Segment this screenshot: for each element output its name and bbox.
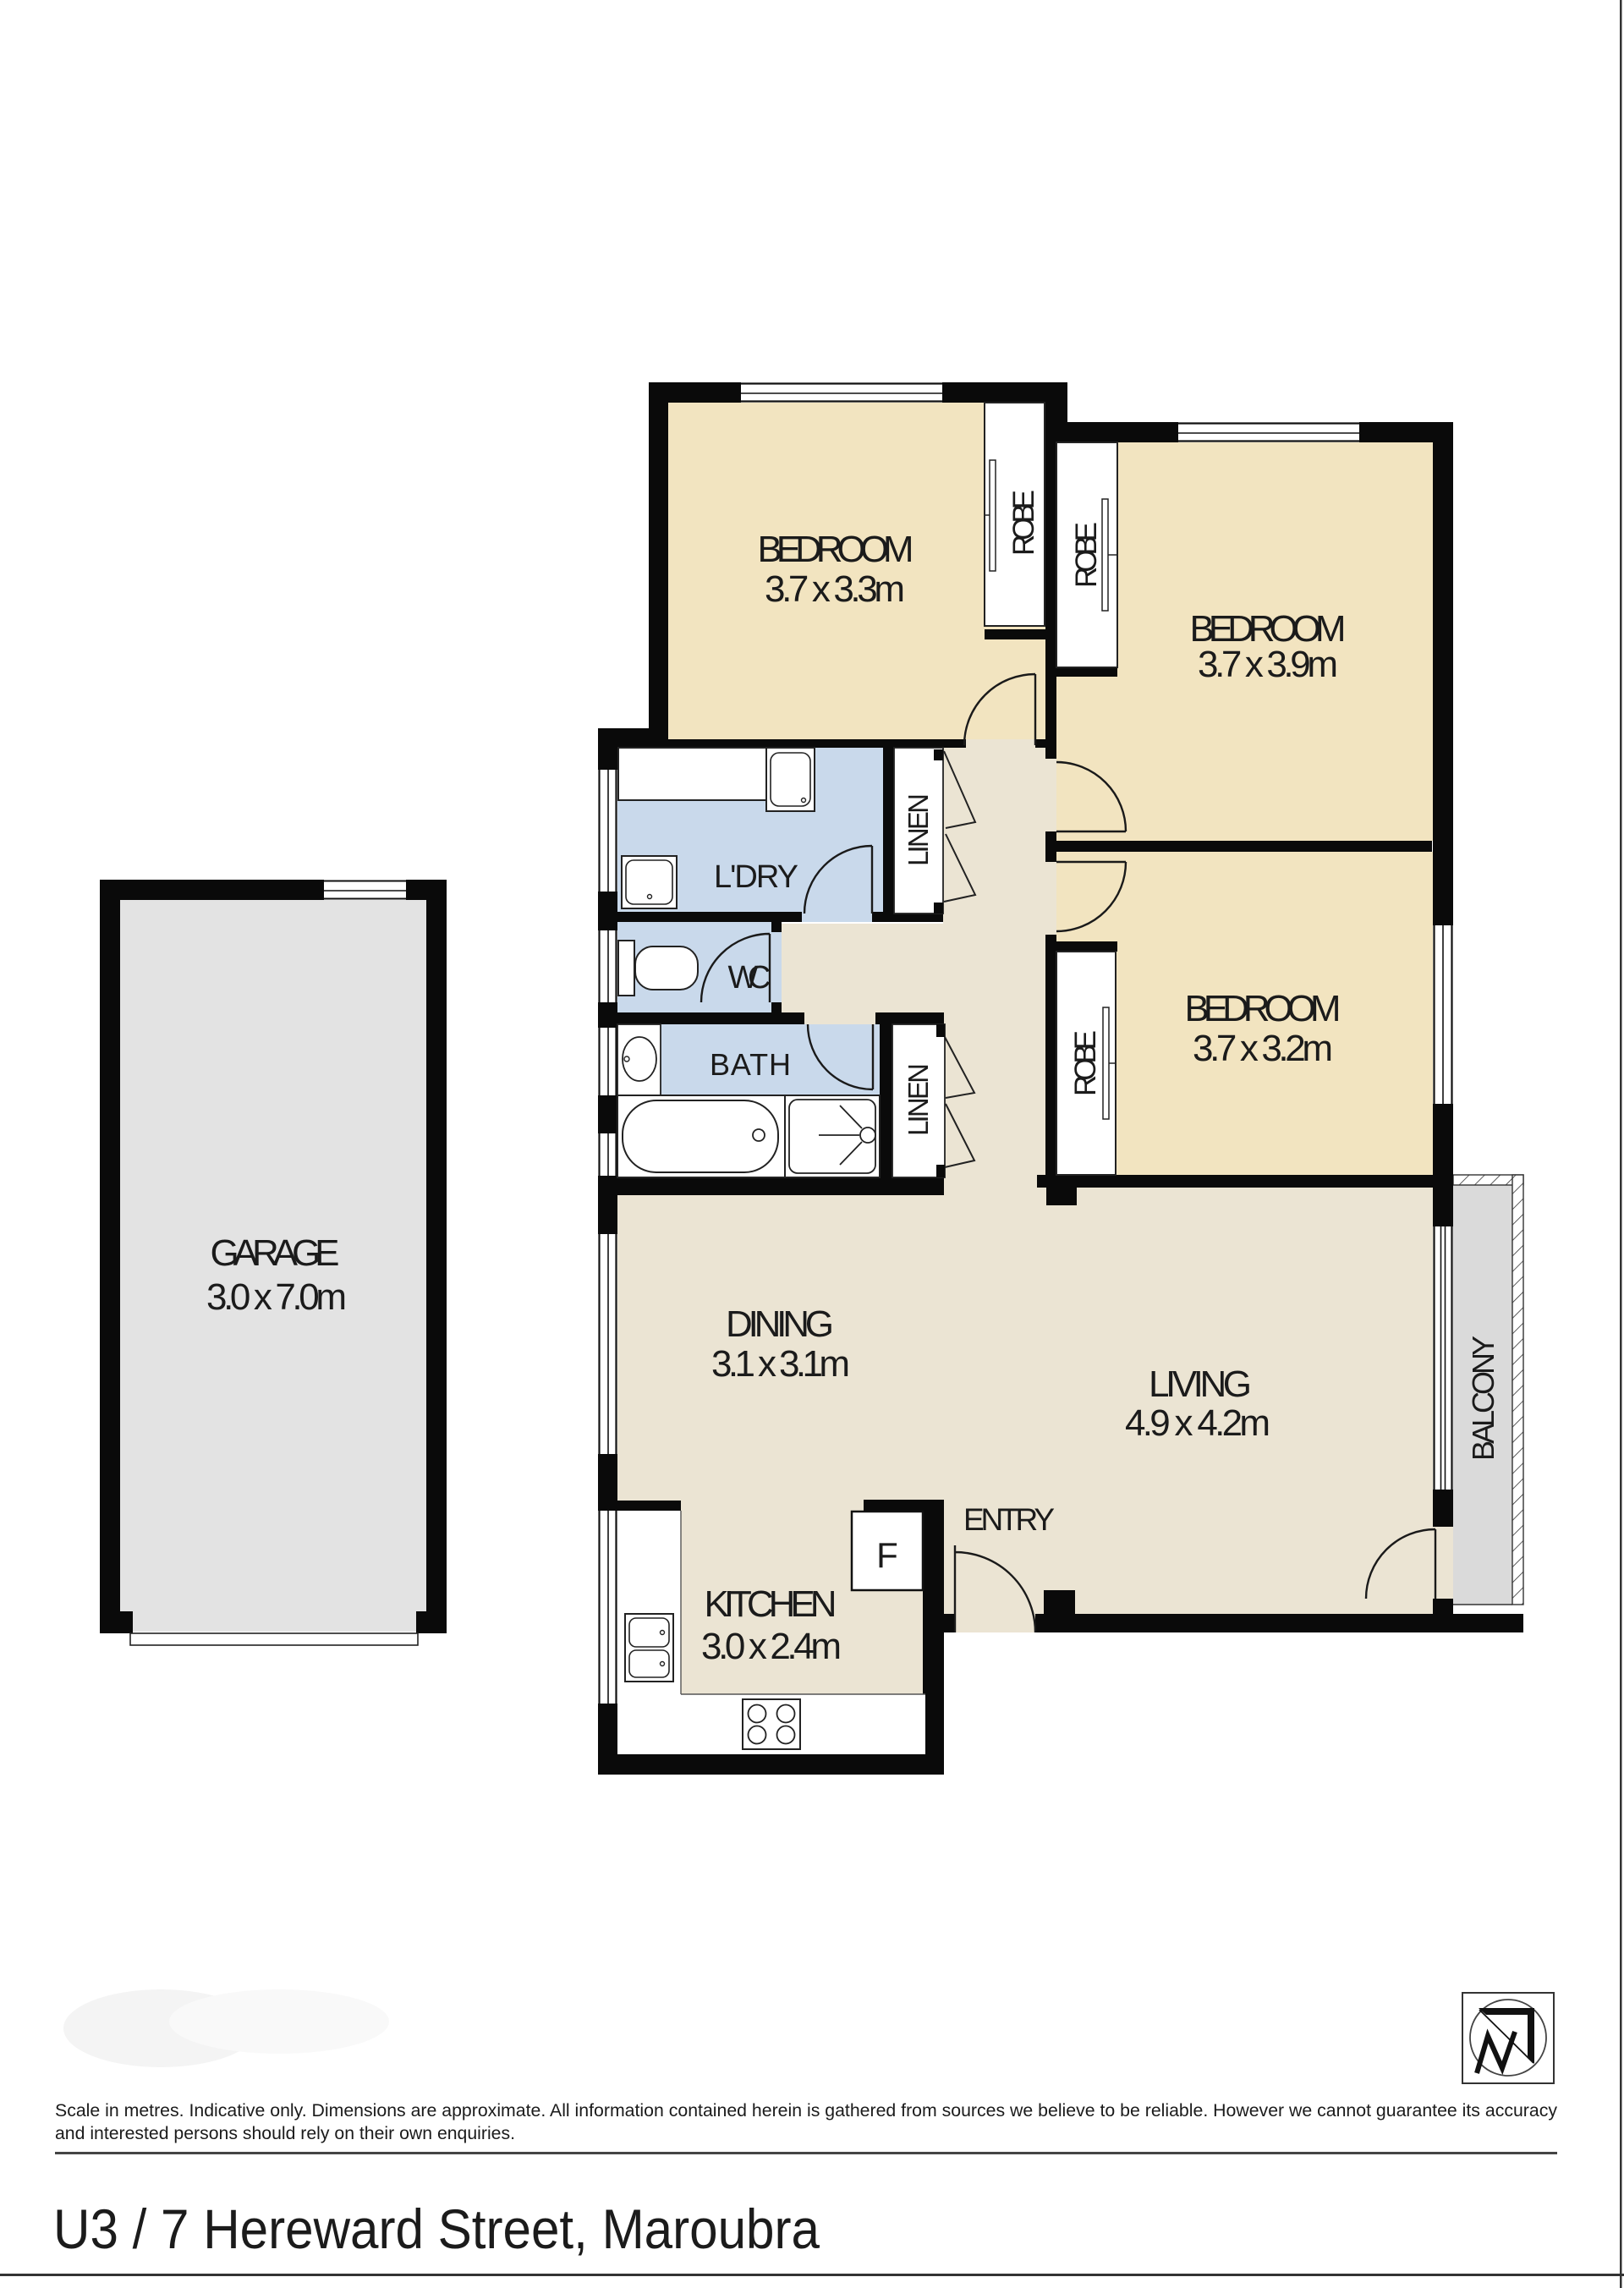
- svg-text:ROBE: ROBE: [1007, 490, 1040, 556]
- svg-text:L'DRY: L'DRY: [714, 859, 798, 895]
- svg-text:DINING: DINING: [726, 1303, 834, 1345]
- svg-text:3.1 x 3.1m: 3.1 x 3.1m: [711, 1343, 850, 1385]
- svg-text:GARAGE: GARAGE: [211, 1232, 340, 1274]
- svg-text:3.7 x 3.2m: 3.7 x 3.2m: [1193, 1028, 1333, 1069]
- svg-text:3.7 x 3.3m: 3.7 x 3.3m: [765, 568, 905, 610]
- svg-text:BEDROOM: BEDROOM: [758, 529, 914, 570]
- svg-text:BATH: BATH: [710, 1047, 791, 1082]
- svg-text:ROBE: ROBE: [1070, 522, 1103, 588]
- svg-text:LINEN: LINEN: [903, 793, 934, 866]
- svg-text:ROBE: ROBE: [1069, 1030, 1102, 1096]
- svg-text:3.0 x 2.4m: 3.0 x 2.4m: [701, 1626, 842, 1667]
- svg-text:KITCHEN: KITCHEN: [705, 1583, 837, 1625]
- svg-text:BALCONY: BALCONY: [1466, 1336, 1501, 1461]
- svg-text:LIVING: LIVING: [1149, 1363, 1252, 1405]
- svg-text:and interested persons should: and interested persons should rely on th…: [55, 2123, 515, 2143]
- svg-text:3.0 x 7.0m: 3.0 x 7.0m: [206, 1276, 347, 1318]
- svg-text:3.7 x 3.9m: 3.7 x 3.9m: [1198, 644, 1338, 685]
- svg-text:LINEN: LINEN: [903, 1063, 934, 1136]
- svg-text:WC: WC: [728, 960, 771, 996]
- svg-text:BEDROOM: BEDROOM: [1185, 988, 1341, 1029]
- svg-text:Scale in metres. Indicative on: Scale in metres. Indicative only. Dimens…: [55, 2100, 1557, 2121]
- svg-text:ENTRY: ENTRY: [963, 1502, 1055, 1537]
- svg-text:4.9 x 4.2m: 4.9 x 4.2m: [1125, 1402, 1270, 1444]
- svg-text:U3 / 7 Hereward Street, Maroub: U3 / 7 Hereward Street, Maroubra: [53, 2197, 820, 2260]
- svg-text:F: F: [876, 1535, 898, 1575]
